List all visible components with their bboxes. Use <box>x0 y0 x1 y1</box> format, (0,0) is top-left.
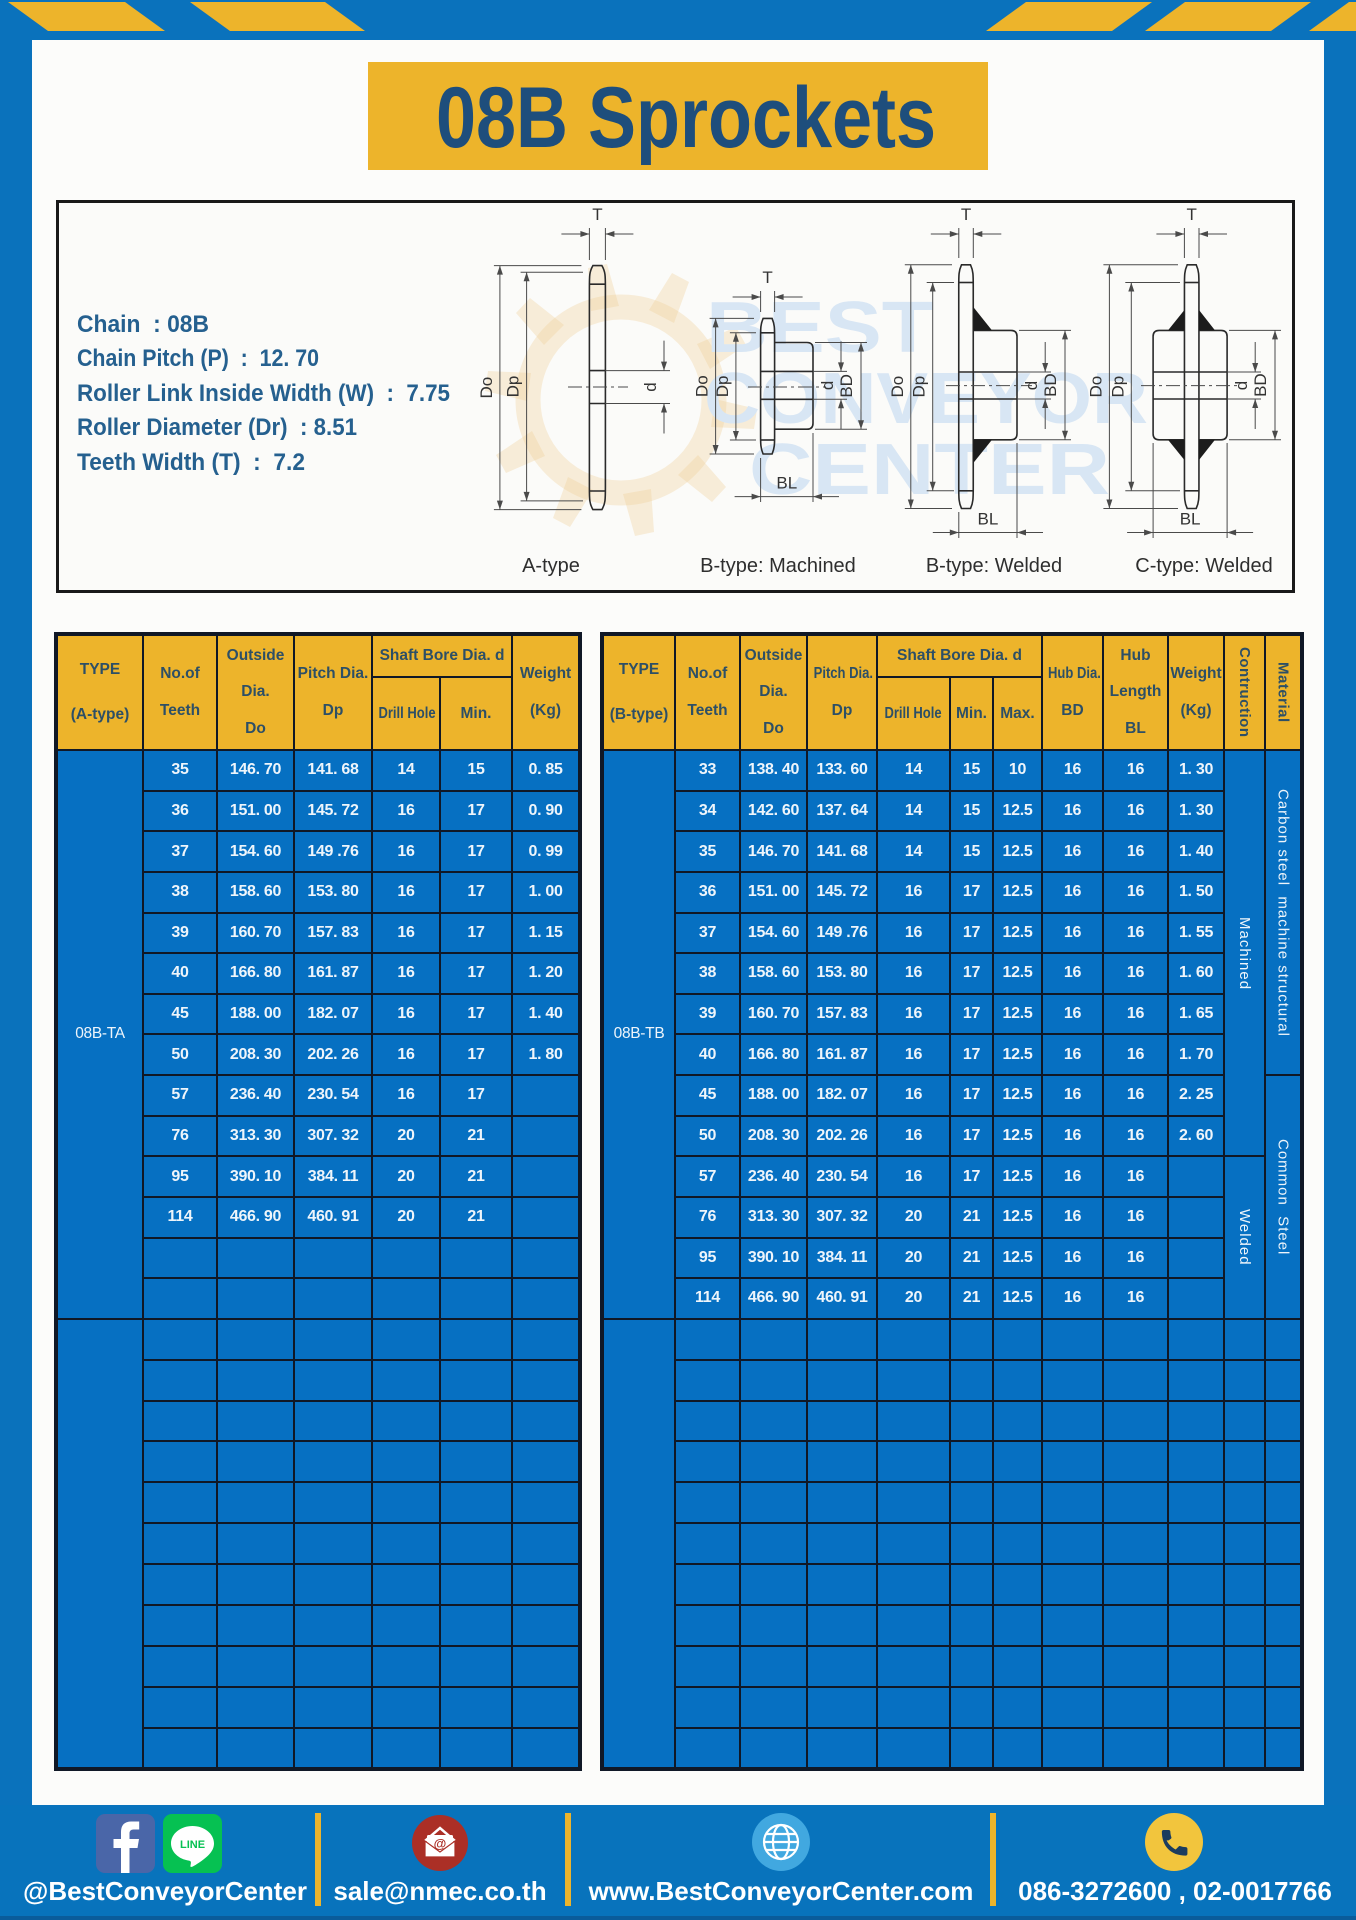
svg-text:BEST: BEST <box>706 288 934 368</box>
svg-text:Roller Diameter (Dr) : 8.51: Roller Diameter (Dr) : 8.51 <box>77 414 357 441</box>
svg-text:Dp: Dp <box>1108 376 1127 398</box>
svg-text:Do: Do <box>1086 376 1105 398</box>
svg-text:A-type: A-type <box>522 555 580 577</box>
svg-text:d: d <box>1232 381 1251 390</box>
svg-text:Dp: Dp <box>713 376 732 398</box>
svg-text:d: d <box>1022 381 1041 390</box>
svg-text:Do: Do <box>477 377 496 399</box>
svg-text:LINE: LINE <box>180 1839 205 1851</box>
svg-text:Chain Pitch (P) : 12. 70: Chain Pitch (P) : 12. 70 <box>77 345 319 372</box>
svg-text:BL: BL <box>978 510 999 529</box>
svg-text:08B Sprockets: 08B Sprockets <box>436 70 936 166</box>
svg-text:BL: BL <box>1180 510 1201 529</box>
svg-text:B-type: Machined: B-type: Machined <box>700 555 856 577</box>
svg-text:Chain : 08B: Chain : 08B <box>77 311 209 338</box>
svg-text:T: T <box>592 205 602 224</box>
svg-text:T: T <box>961 205 971 224</box>
svg-text:T: T <box>762 268 772 287</box>
svg-text:BD: BD <box>1251 373 1270 397</box>
svg-text:Roller Link Inside Width (W): Roller Link Inside Width (W) : 7.75 <box>77 380 450 407</box>
svg-text:C-type: Welded: C-type: Welded <box>1135 555 1272 577</box>
svg-text:Do: Do <box>888 376 907 398</box>
svg-text:Dp: Dp <box>504 376 523 398</box>
svg-text:BD: BD <box>1041 373 1060 397</box>
svg-text:Dp: Dp <box>910 376 929 398</box>
svg-text:d: d <box>641 382 660 391</box>
svg-text:Do: Do <box>693 375 712 397</box>
svg-text:B-type: Welded: B-type: Welded <box>926 555 1062 577</box>
svg-text:BD: BD <box>837 374 856 398</box>
svg-text:T: T <box>1187 205 1197 224</box>
svg-text:BL: BL <box>776 474 797 493</box>
svg-text:CENTER: CENTER <box>749 430 1110 510</box>
svg-text:Teeth Width (T) : 7.2: Teeth Width (T) : 7.2 <box>77 449 305 476</box>
svg-text:d: d <box>818 381 837 390</box>
